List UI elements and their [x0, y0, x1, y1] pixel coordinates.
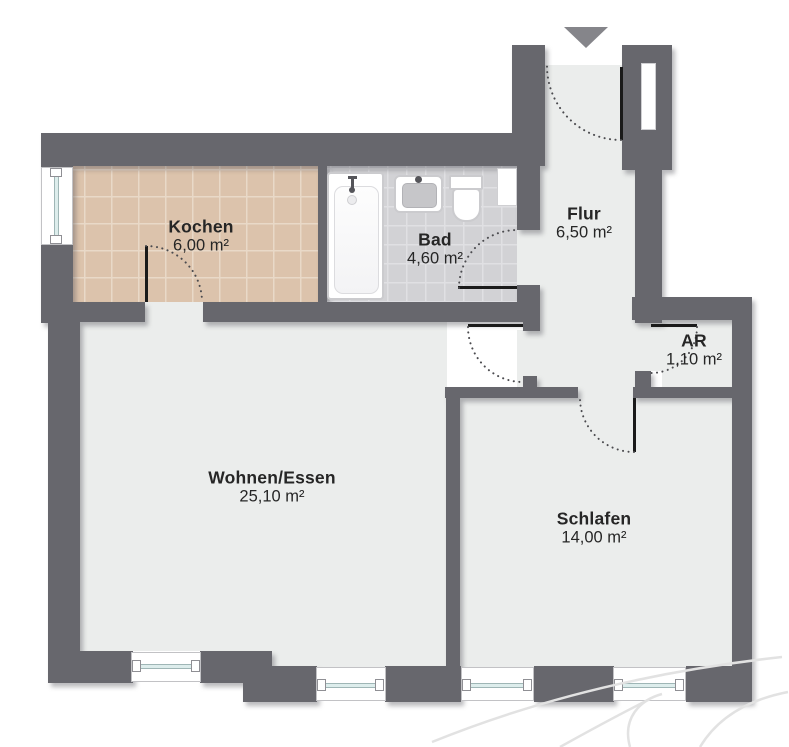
- room-name: AR: [666, 331, 722, 351]
- watermark-curve: [628, 694, 662, 747]
- room-area: 6,00 m²: [168, 237, 233, 256]
- watermark-curve: [432, 657, 782, 742]
- watermark-curve: [700, 692, 788, 747]
- room-area: 14,00 m²: [557, 529, 632, 548]
- schlafen-door-swing-arc: [580, 398, 634, 452]
- watermark-curve: [560, 699, 650, 747]
- wohnen-door-swing-arc: [468, 327, 523, 382]
- room-area: 6,50 m²: [556, 224, 612, 243]
- room-name: Kochen: [168, 217, 233, 237]
- room-label-wohnen: Wohnen/Essen 25,10 m²: [208, 468, 336, 507]
- room-name: Schlafen: [557, 509, 632, 529]
- room-label-ar: AR 1,10 m²: [666, 331, 722, 370]
- room-area: 25,10 m²: [208, 488, 336, 507]
- entrance-arrow-icon: [564, 27, 608, 48]
- bad-door-swing-arc: [459, 230, 517, 288]
- room-label-kochen: Kochen 6,00 m²: [168, 217, 233, 256]
- room-label-bad: Bad 4,60 m²: [407, 230, 463, 269]
- watermark: [432, 657, 788, 747]
- room-name: Flur: [556, 204, 612, 224]
- room-area: 1,10 m²: [666, 351, 722, 370]
- room-name: Bad: [407, 230, 463, 250]
- room-name: Wohnen/Essen: [208, 468, 336, 488]
- doors-overlay: [0, 0, 789, 747]
- room-area: 4,60 m²: [407, 250, 463, 269]
- room-label-flur: Flur 6,50 m²: [556, 204, 612, 243]
- room-label-schlafen: Schlafen 14,00 m²: [557, 509, 632, 548]
- floor-plan: Kochen 6,00 m² Bad 4,60 m² Flur 6,50 m² …: [0, 0, 789, 747]
- entrance-door-swing-arc: [547, 66, 621, 140]
